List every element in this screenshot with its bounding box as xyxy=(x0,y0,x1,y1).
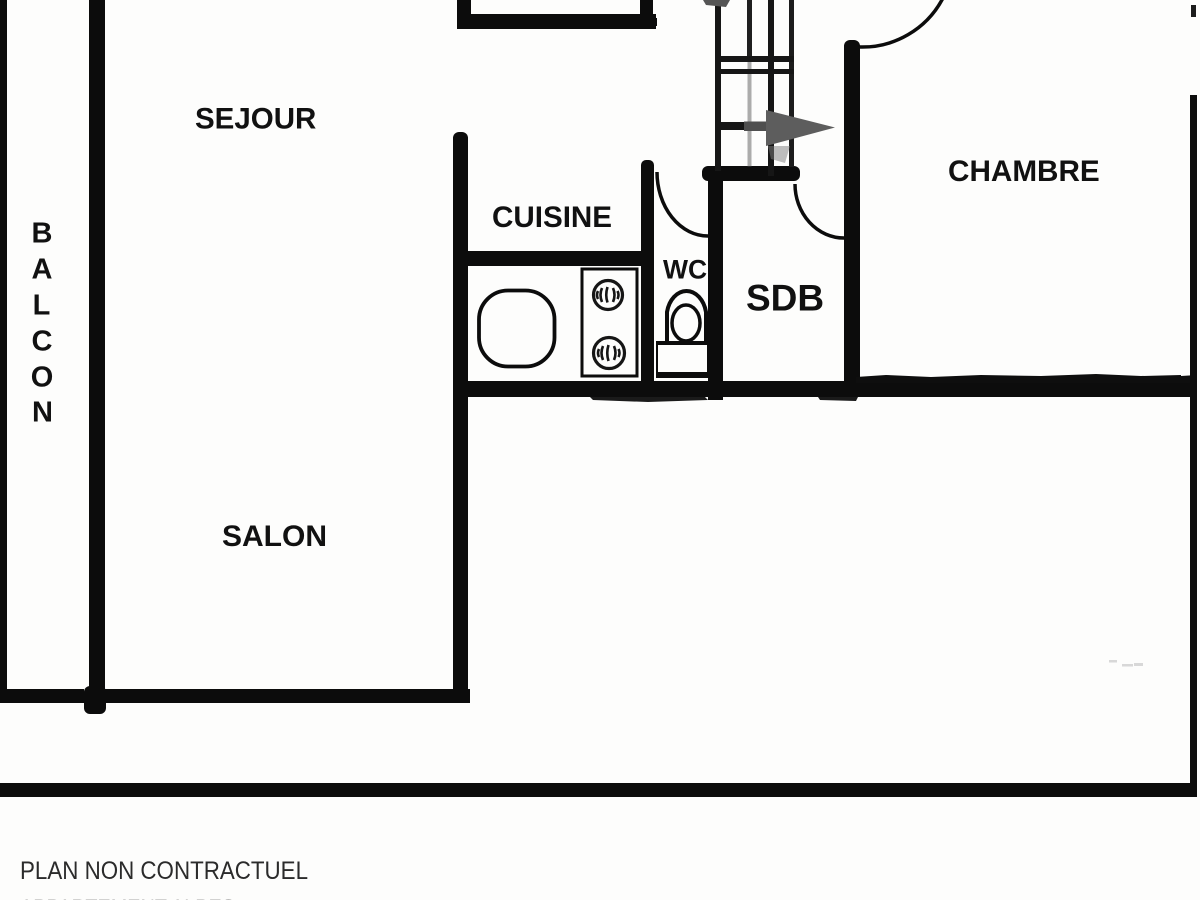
svg-text:SALON: SALON xyxy=(222,520,327,553)
svg-text:PLAN NON CONTRACTUEL: PLAN NON CONTRACTUEL xyxy=(20,857,308,885)
svg-text:B: B xyxy=(32,218,53,250)
svg-text:C: C xyxy=(32,326,53,358)
svg-text:APPARTEMENT ALPES: APPARTEMENT ALPES xyxy=(20,895,235,900)
svg-text:SEJOUR: SEJOUR xyxy=(195,103,316,136)
svg-text:WC: WC xyxy=(663,255,707,285)
svg-text:CHAMBRE: CHAMBRE xyxy=(948,155,1100,188)
svg-text:N: N xyxy=(32,397,53,429)
svg-text:L: L xyxy=(33,290,51,322)
svg-text:A: A xyxy=(32,254,53,286)
svg-text:O: O xyxy=(31,362,54,394)
svg-text:SDB: SDB xyxy=(746,278,824,319)
svg-text:CUISINE: CUISINE xyxy=(492,201,612,234)
